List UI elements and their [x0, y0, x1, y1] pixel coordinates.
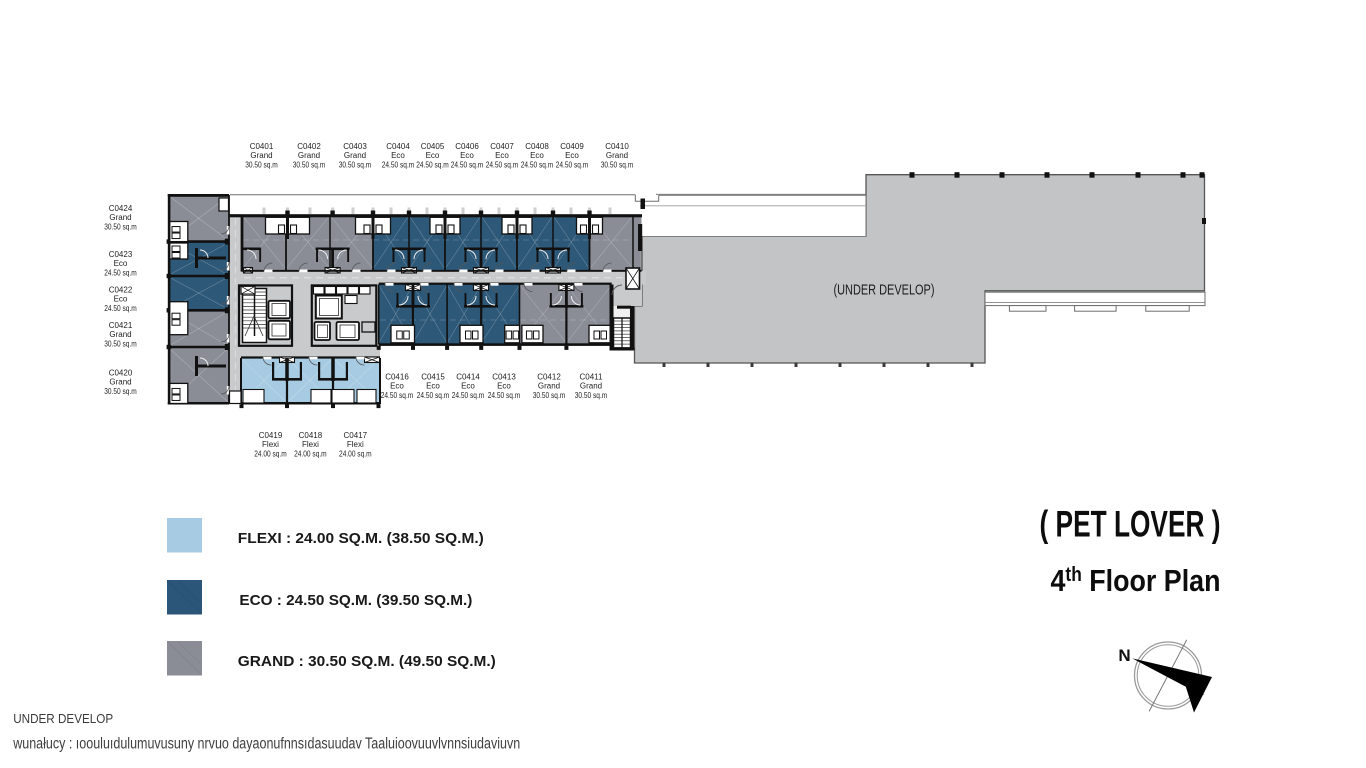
svg-text:24.50 sq.m: 24.50 sq.m: [104, 268, 137, 277]
svg-text:30.50 sq.m: 30.50 sq.m: [601, 160, 634, 169]
svg-text:Eco: Eco: [426, 382, 440, 391]
svg-text:Grand: Grand: [538, 382, 560, 391]
svg-text:C0406: C0406: [455, 142, 479, 151]
svg-text:Grand: Grand: [109, 213, 131, 222]
svg-text:24.50 sq.m: 24.50 sq.m: [452, 391, 485, 400]
svg-text:Flexi: Flexi: [262, 440, 279, 449]
svg-text:C0402: C0402: [297, 142, 321, 151]
svg-text:30.50 sq.m: 30.50 sq.m: [245, 160, 278, 169]
svg-text:ECO : 24.50 SQ.M. (39.50 SQ.M.: ECO : 24.50 SQ.M. (39.50 SQ.M.): [239, 592, 472, 609]
svg-text:24.50 sq.m: 24.50 sq.m: [417, 391, 450, 400]
svg-text:Grand: Grand: [298, 151, 320, 160]
svg-text:C0411: C0411: [580, 373, 604, 382]
svg-text:Grand: Grand: [109, 330, 131, 339]
svg-text:C0422: C0422: [109, 286, 133, 295]
svg-text:24.50 sq.m: 24.50 sq.m: [104, 304, 137, 313]
svg-text:C0410: C0410: [605, 142, 629, 151]
svg-text:24.50 sq.m: 24.50 sq.m: [486, 160, 519, 169]
svg-text:24.50 sq.m: 24.50 sq.m: [382, 160, 415, 169]
svg-text:C0421: C0421: [109, 321, 133, 330]
svg-text:Grand: Grand: [344, 151, 366, 160]
svg-text:C0412: C0412: [537, 373, 561, 382]
svg-text:30.50 sq.m: 30.50 sq.m: [104, 222, 137, 231]
svg-text:30.50 sq.m: 30.50 sq.m: [575, 391, 608, 400]
svg-text:Eco: Eco: [390, 382, 404, 391]
svg-text:Flexi: Flexi: [347, 440, 364, 449]
svg-text:Grand: Grand: [580, 382, 602, 391]
svg-text:N: N: [1118, 646, 1130, 665]
svg-text:Eco: Eco: [530, 151, 544, 160]
svg-text:24.50 sq.m: 24.50 sq.m: [556, 160, 589, 169]
svg-text:24.50 sq.m: 24.50 sq.m: [521, 160, 554, 169]
svg-text:30.50 sq.m: 30.50 sq.m: [104, 387, 137, 396]
svg-text:C0403: C0403: [343, 142, 367, 151]
svg-text:Grand: Grand: [109, 378, 131, 387]
svg-text:Eco: Eco: [114, 295, 128, 304]
svg-text:Grand: Grand: [606, 151, 628, 160]
svg-text:C0405: C0405: [421, 142, 445, 151]
svg-text:C0404: C0404: [386, 142, 410, 151]
svg-text:Grand: Grand: [250, 151, 272, 160]
svg-text:Eco: Eco: [114, 259, 128, 268]
svg-text:GRAND : 30.50 SQ.M. (49.50 SQ.: GRAND : 30.50 SQ.M. (49.50 SQ.M.): [238, 653, 496, 670]
svg-text:24.50 sq.m: 24.50 sq.m: [488, 391, 521, 400]
svg-text:C0416: C0416: [385, 373, 409, 382]
svg-text:C0417: C0417: [344, 431, 368, 440]
svg-text:C0401: C0401: [250, 142, 274, 151]
svg-text:30.50 sq.m: 30.50 sq.m: [104, 339, 137, 348]
svg-text:(UNDER DEVELOP): (UNDER DEVELOP): [834, 283, 935, 299]
svg-text:( PET LOVER ): ( PET LOVER ): [1040, 504, 1221, 545]
svg-text:24.50 sq.m: 24.50 sq.m: [381, 391, 414, 400]
svg-text:24.00 sq.m: 24.00 sq.m: [339, 449, 372, 458]
svg-text:Eco: Eco: [461, 382, 475, 391]
svg-text:C0409: C0409: [560, 142, 584, 151]
svg-text:C0424: C0424: [109, 204, 133, 213]
svg-text:C0407: C0407: [490, 142, 514, 151]
svg-text:C0408: C0408: [525, 142, 549, 151]
svg-text:30.50 sq.m: 30.50 sq.m: [293, 160, 326, 169]
svg-text:Eco: Eco: [391, 151, 405, 160]
svg-text:Eco: Eco: [460, 151, 474, 160]
svg-text:Eco: Eco: [495, 151, 509, 160]
svg-text:FLEXI : 24.00 SQ.M. (38.50 SQ.: FLEXI : 24.00 SQ.M. (38.50 SQ.M.): [238, 530, 484, 547]
svg-text:wunałucy : ıoouluıdulumuvusuny: wunałucy : ıoouluıdulumuvusuny nrvuo day…: [12, 736, 520, 753]
svg-text:C0414: C0414: [456, 373, 480, 382]
svg-text:C0419: C0419: [259, 431, 283, 440]
svg-text:24.00 sq.m: 24.00 sq.m: [254, 449, 287, 458]
svg-text:24.50 sq.m: 24.50 sq.m: [451, 160, 484, 169]
svg-text:Eco: Eco: [426, 151, 440, 160]
svg-text:Eco: Eco: [497, 382, 511, 391]
svg-text:UNDER DEVELOP: UNDER DEVELOP: [13, 712, 113, 726]
svg-text:C0420: C0420: [109, 369, 133, 378]
svg-text:Eco: Eco: [565, 151, 579, 160]
svg-text:C0415: C0415: [421, 373, 445, 382]
svg-text:Flexi: Flexi: [302, 440, 319, 449]
svg-text:30.50 sq.m: 30.50 sq.m: [339, 160, 372, 169]
svg-text:C0423: C0423: [109, 250, 133, 259]
svg-text:C0413: C0413: [492, 373, 516, 382]
svg-text:C0418: C0418: [299, 431, 323, 440]
svg-text:24.50 sq.m: 24.50 sq.m: [416, 160, 449, 169]
svg-text:24.00 sq.m: 24.00 sq.m: [294, 449, 327, 458]
svg-text:30.50 sq.m: 30.50 sq.m: [533, 391, 566, 400]
svg-text:4th Floor Plan: 4th Floor Plan: [1051, 563, 1221, 598]
